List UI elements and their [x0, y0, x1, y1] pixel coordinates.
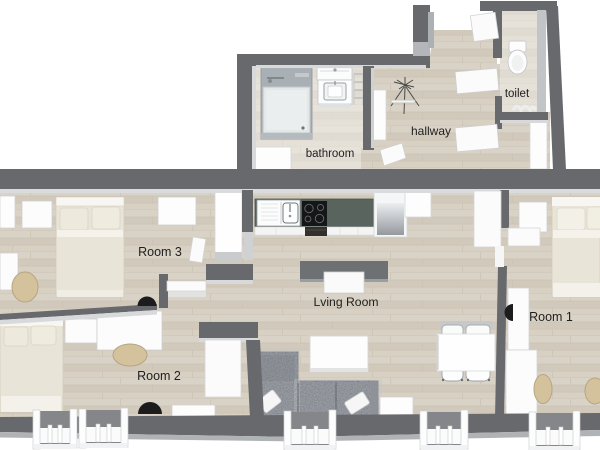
svg-text:Lving Room: Lving Room [313, 295, 378, 309]
svg-text:toilet: toilet [505, 88, 530, 100]
svg-text:Room 3: Room 3 [138, 245, 182, 259]
svg-text:bathroom: bathroom [306, 148, 355, 160]
svg-text:hallway: hallway [411, 124, 451, 138]
svg-text:Room 1: Room 1 [529, 310, 573, 324]
svg-text:Room 2: Room 2 [137, 369, 181, 383]
